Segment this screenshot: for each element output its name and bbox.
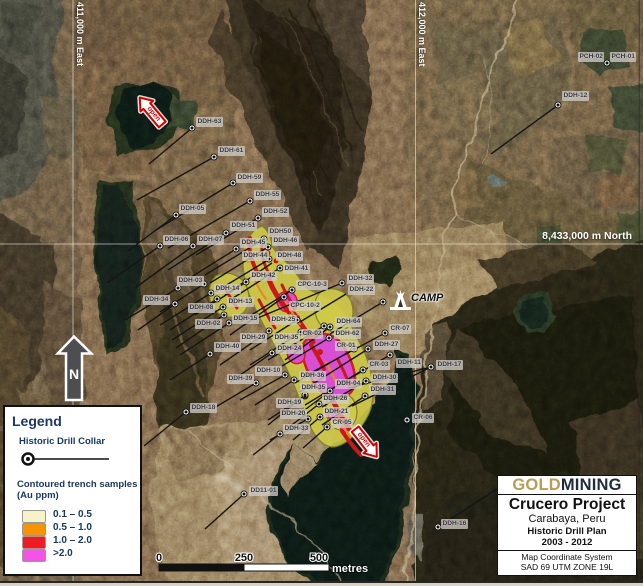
svg-text:0: 0 [156, 552, 162, 564]
svg-text:500: 500 [310, 552, 328, 564]
svg-text:metres: metres [332, 563, 368, 575]
svg-text:N: N [69, 366, 79, 382]
svg-text:250: 250 [235, 552, 253, 564]
